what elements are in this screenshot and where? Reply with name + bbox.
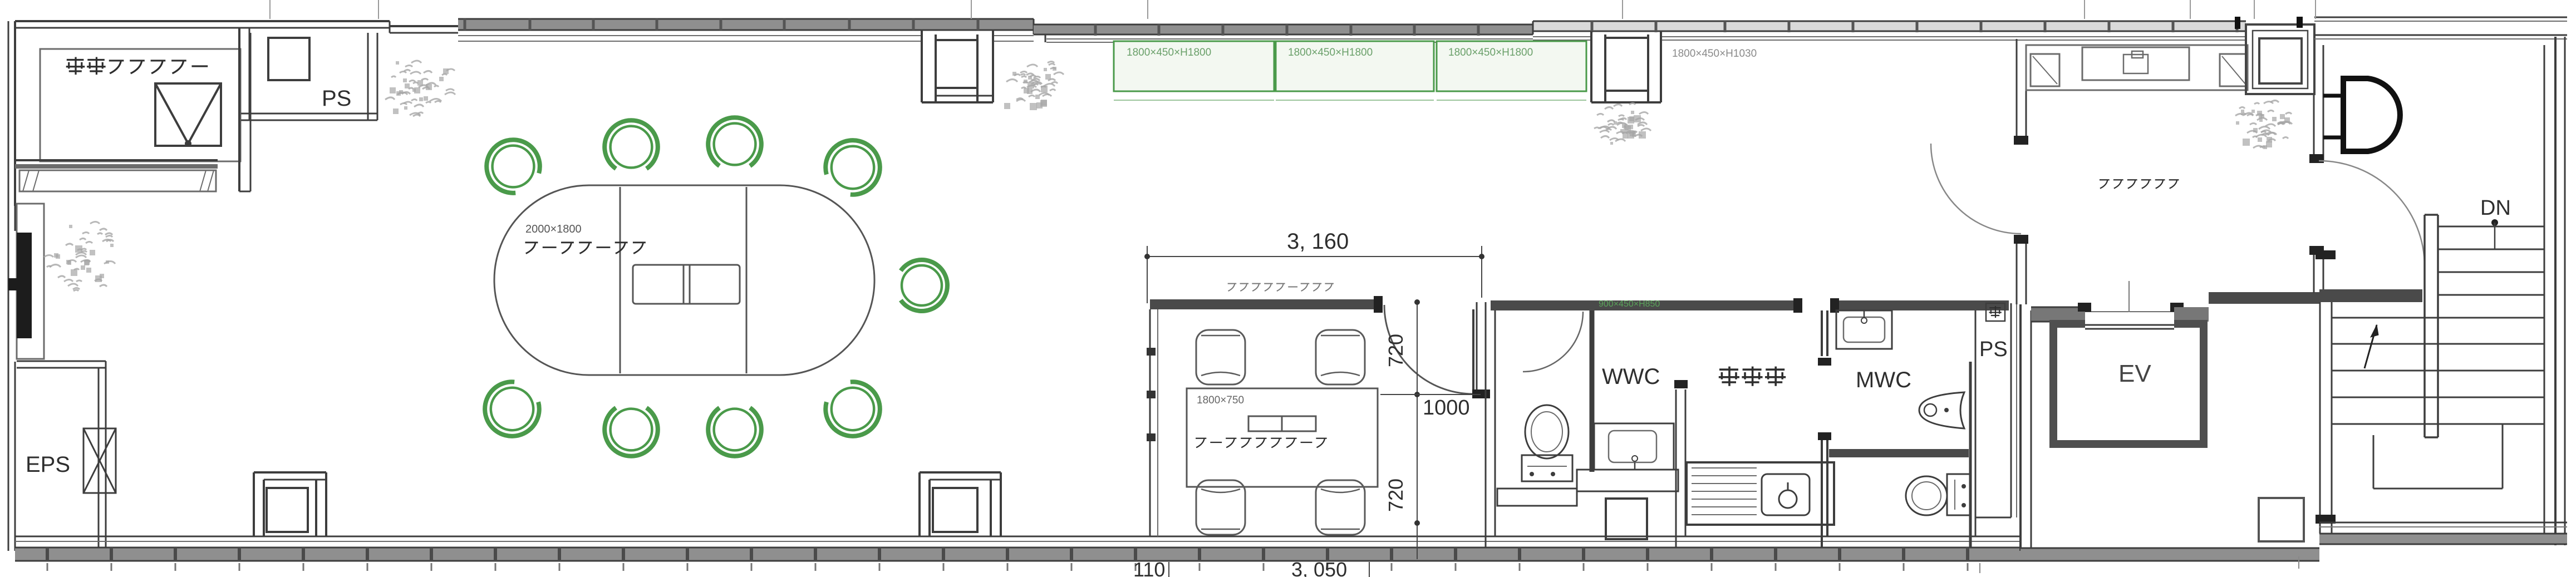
svg-text:1800×450×H1800: 1800×450×H1800 xyxy=(1288,47,1373,58)
svg-text:PS: PS xyxy=(322,86,351,111)
svg-text:3, 160: 3, 160 xyxy=(1287,229,1349,254)
svg-text:1800×450×H1800: 1800×450×H1800 xyxy=(1448,47,1533,58)
svg-text:EPS: EPS xyxy=(26,452,70,477)
svg-text:1800×450×H1030: 1800×450×H1030 xyxy=(1672,48,1757,60)
svg-text:EV: EV xyxy=(2118,360,2151,387)
svg-text:DN: DN xyxy=(2480,196,2511,220)
svg-text:PS: PS xyxy=(1979,338,2008,361)
svg-text:2000×1800: 2000×1800 xyxy=(525,223,582,235)
svg-text:MWC: MWC xyxy=(1856,368,1911,392)
svg-text:1000: 1000 xyxy=(1423,396,1470,420)
svg-text:110: 110 xyxy=(1133,558,1165,577)
svg-text:1800×750: 1800×750 xyxy=(1197,394,1244,406)
svg-text:900×450×H850: 900×450×H850 xyxy=(1599,299,1660,309)
svg-text:720: 720 xyxy=(1384,479,1407,512)
svg-text:720: 720 xyxy=(1384,334,1407,367)
svg-text:3, 050: 3, 050 xyxy=(1291,558,1347,577)
svg-text:WWC: WWC xyxy=(1602,364,1660,389)
svg-text:1800×450×H1800: 1800×450×H1800 xyxy=(1127,47,1211,58)
